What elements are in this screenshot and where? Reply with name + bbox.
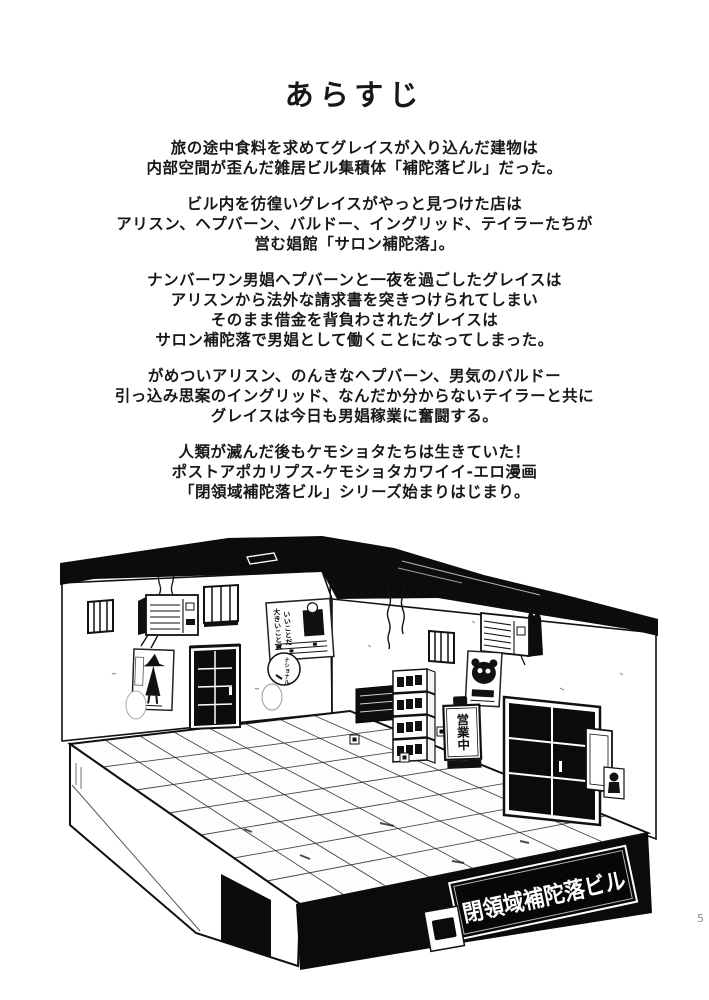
synopsis-line: そのまま借金を背負わされたグレイスは (0, 310, 709, 330)
synopsis-line: ポストアポカリプス-ケモショタカワイイ-エロ漫画 (0, 462, 709, 482)
open-sign-text: 営業中 (454, 712, 471, 752)
synopsis-line: 内部空間が歪んだ雑居ビル集積体「補陀落ビル」だった。 (0, 158, 709, 178)
synopsis-line: ナンバーワン男娼ヘプバーンと一夜を過ごしたグレイスは (0, 270, 709, 290)
synopsis-line: グレイスは今日も男娼稼業に奮闘する。 (0, 406, 709, 426)
synopsis-line: 「閉領域補陀落ビル」シリーズ始まりはじまり。 (0, 482, 709, 502)
left-window-1 (88, 600, 113, 633)
sign-footer-box (424, 906, 464, 951)
synopsis-line: アリスン、ヘプバーン、バルドー、イングリッド、テイラーたちが (0, 214, 709, 234)
round-sticker-text: ナショナル (283, 657, 290, 685)
open-sign-board: 営業中 (443, 696, 481, 769)
synopsis-line: 営む娼館「サロン補陀落」。 (0, 234, 709, 254)
synopsis-line: がめついアリスン、のんきなヘプバーン、男気のバルドー (0, 366, 709, 386)
synopsis-line: 旅の途中食料を求めてグレイスが入り込んだ建物は (0, 138, 709, 158)
synopsis-line: 人類が滅んだ後もケモショタたちは生きていた！ (0, 442, 709, 462)
synopsis-paragraph-2: ビル内を彷徨いグレイスがやっと見つけた店は アリスン、ヘプバーン、バルドー、イン… (0, 194, 709, 254)
ad-poster: 大きいことは いいことだ (266, 599, 334, 661)
wall-tag (400, 753, 409, 762)
synopsis-line: 引っ込み思案のイングリッド、なんだか分からないテイラーと共に (0, 386, 709, 406)
synopsis-line: サロン補陀落で男娼として働くことになってしまった。 (0, 330, 709, 350)
synopsis-paragraph-4: がめついアリスン、のんきなヘプバーン、男気のバルドー 引っ込み思案のイングリッド… (0, 366, 709, 426)
manga-page: あらすじ 旅の途中食料を求めてグレイスが入り込んだ建物は 内部空間が歪んだ雑居ビ… (0, 0, 709, 1000)
page-number: 5 (697, 912, 704, 925)
mascot-poster (465, 651, 502, 707)
torn-poster (126, 691, 146, 719)
synopsis-paragraph-5: 人類が滅んだ後もケモショタたちは生きていた！ ポストアポカリプス-ケモショタカワ… (0, 442, 709, 502)
page-title: あらすじ (0, 72, 709, 114)
wall-tag (350, 735, 359, 744)
right-window-1 (429, 631, 454, 663)
synopsis-block: あらすじ 旅の途中食料を求めてグレイスが入り込んだ建物は 内部空間が歪んだ雑居ビ… (0, 72, 709, 518)
synopsis-line: ビル内を彷徨いグレイスがやっと見つけた店は (0, 194, 709, 214)
crates-stack (393, 669, 435, 763)
room-illustration: 閉領域補陀落ビル (0, 523, 709, 973)
synopsis-paragraph-1: 旅の途中食料を求めてグレイスが入り込んだ建物は 内部空間が歪んだ雑居ビル集積体「… (0, 138, 709, 178)
synopsis-paragraph-3: ナンバーワン男娼ヘプバーンと一夜を過ごしたグレイスは アリスンから法外な請求書を… (0, 270, 709, 350)
figure-poster (604, 767, 624, 799)
left-door (190, 645, 240, 729)
left-window-2 (204, 585, 238, 627)
torn-tape (262, 684, 282, 710)
synopsis-line: アリスンから法外な請求書を突きつけられてしまい (0, 290, 709, 310)
